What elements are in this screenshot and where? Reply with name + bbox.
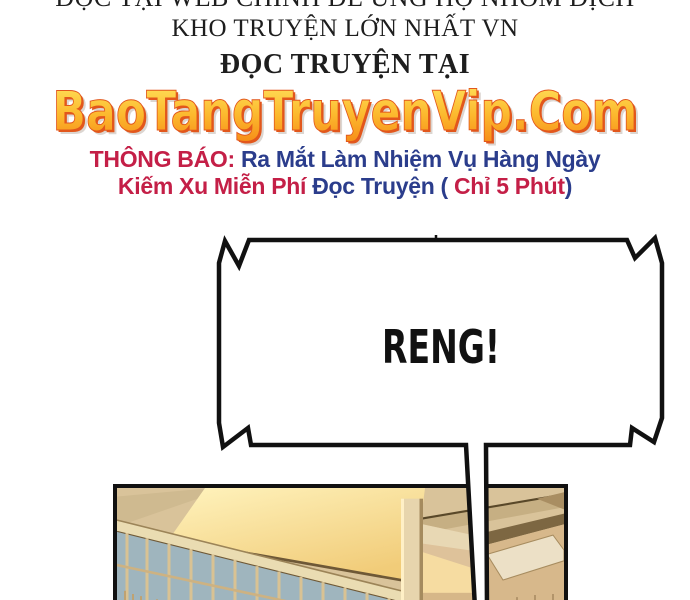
- announcement-line-2: Kiếm Xu Miễn Phí Đọc Truyện ( Chỉ 5 Phút…: [0, 173, 690, 200]
- announcement-line-1: THÔNG BÁO: Ra Mắt Làm Nhiệm Vụ Hàng Ngày: [0, 146, 690, 173]
- site-title-text: BaoTangTruyenVip.Com: [53, 80, 638, 143]
- header-line-2: KHO TRUYỆN LỚN NHẤT VN: [0, 14, 690, 44]
- announcement-label: THÔNG BÁO:: [90, 146, 241, 172]
- announcement-line2-seg3: Chỉ 5 Phút: [454, 173, 565, 199]
- header-line-1: ĐỌC TẠI WEB CHÍNH ĐỂ ỦNG HỘ NHÓM DỊCH: [0, 0, 690, 11]
- announcement-line2-seg1: Kiếm Xu Miễn Phí: [118, 173, 312, 199]
- speech-bubble-text: RENG!: [382, 320, 500, 374]
- announcement-line1-text: Ra Mắt Làm Nhiệm Vụ Hàng Ngày: [241, 146, 600, 172]
- announcement-line2-seg2: Đọc Truyện (: [312, 173, 454, 199]
- announcement-line2-seg4: ): [565, 173, 572, 199]
- site-title: BaoTangTruyenVip.Com BaoTangTruyenVip.Co…: [0, 72, 690, 150]
- comic-page: ĐỌC TẠI WEB CHÍNH ĐỂ ỦNG HỘ NHÓM DỊCH KH…: [0, 0, 690, 600]
- speech-bubble-outline: [219, 238, 662, 600]
- speech-bubble: RENG!: [200, 225, 670, 600]
